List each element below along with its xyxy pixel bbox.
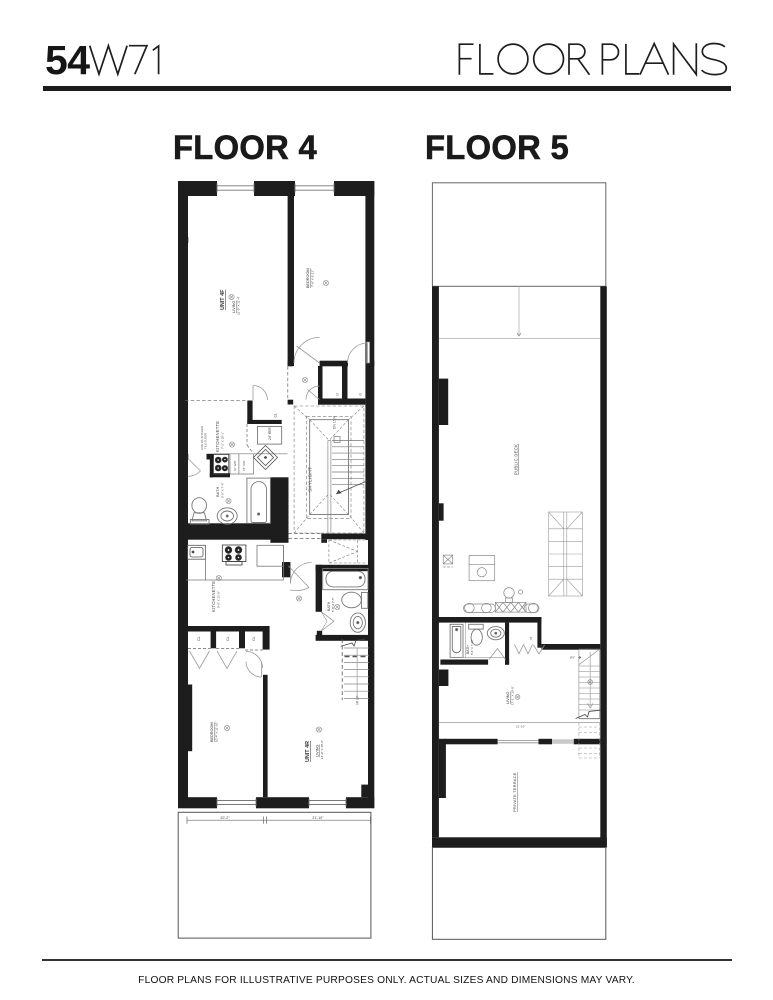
svg-text:PRIVATE TERRACE: PRIVATE TERRACE — [512, 772, 517, 812]
svg-text:KITCHENETTE: KITCHENETTE — [211, 581, 216, 612]
svg-text:UNIT 4R: UNIT 4R — [305, 741, 311, 762]
svg-text:17'-1" X 10'-5": 17'-1" X 10'-5" — [511, 686, 515, 705]
svg-text:5'-4" X 7'-10": 5'-4" X 7'-10" — [470, 639, 474, 655]
svg-text:LIVING: LIVING — [506, 692, 510, 704]
svg-text:CL: CL — [226, 636, 230, 641]
svg-text:10'-4" X 11'-10": 10'-4" X 11'-10" — [215, 722, 219, 742]
svg-text:9R UP: 9R UP — [356, 696, 360, 705]
svg-text:21'-0" X 11'-4": 21'-0" X 11'-4" — [237, 296, 241, 315]
svg-text:KITCHENETTE: KITCHENETTE — [215, 421, 220, 452]
svg-text:LIVING: LIVING — [316, 745, 320, 757]
svg-text:cl: cl — [359, 393, 363, 396]
svg-text:cl: cl — [336, 393, 340, 396]
svg-text:DN 15 R: DN 15 R — [333, 415, 337, 429]
svg-text:7'-9" X 9'-11": 7'-9" X 9'-11" — [311, 270, 315, 287]
svg-text:BATH: BATH — [215, 487, 220, 497]
svg-text:21'-10": 21'-10" — [516, 725, 525, 729]
svg-text:5'-0" X 7'-4": 5'-0" X 7'-4" — [221, 482, 225, 498]
svg-text:UNIT 4F: UNIT 4F — [220, 289, 226, 310]
svg-text:TILE FLOOR: TILE FLOOR — [204, 433, 208, 449]
svg-text:20'-2": 20'-2" — [220, 816, 230, 820]
svg-text:7'-2" X 10'-1": 7'-2" X 10'-1" — [221, 432, 225, 449]
svg-text:cl: cl — [529, 637, 533, 640]
svg-text:CL: CL — [274, 413, 278, 417]
svg-text:24" REF.: 24" REF. — [268, 427, 272, 440]
svg-text:LIVING: LIVING — [232, 301, 236, 313]
svg-text:PUBLIC DECK: PUBLIC DECK — [514, 444, 519, 475]
svg-text:CL: CL — [252, 636, 256, 641]
svg-text:BEDROOM: BEDROOM — [306, 268, 310, 288]
svg-text:9'-0" X 11'-5": 9'-0" X 11'-5" — [217, 591, 221, 608]
svg-text:14'-9" X 15'-6": 14'-9" X 15'-6" — [320, 740, 324, 759]
svg-text:5'-8" X 7'-5": 5'-8" X 7'-5" — [331, 597, 335, 612]
svg-text:SKYLIGHT: SKYLIGHT — [308, 467, 313, 492]
svg-text:BATH: BATH — [466, 645, 470, 654]
svg-text:21'-10": 21'-10" — [312, 816, 324, 820]
svg-text:BEDROOM: BEDROOM — [210, 722, 214, 742]
svg-text:8'9": 8'9" — [570, 656, 575, 660]
svg-text:CL: CL — [197, 636, 201, 641]
svg-text:ST W/D: ST W/D — [233, 460, 237, 471]
svg-text:18" DW: 18" DW — [242, 461, 246, 471]
